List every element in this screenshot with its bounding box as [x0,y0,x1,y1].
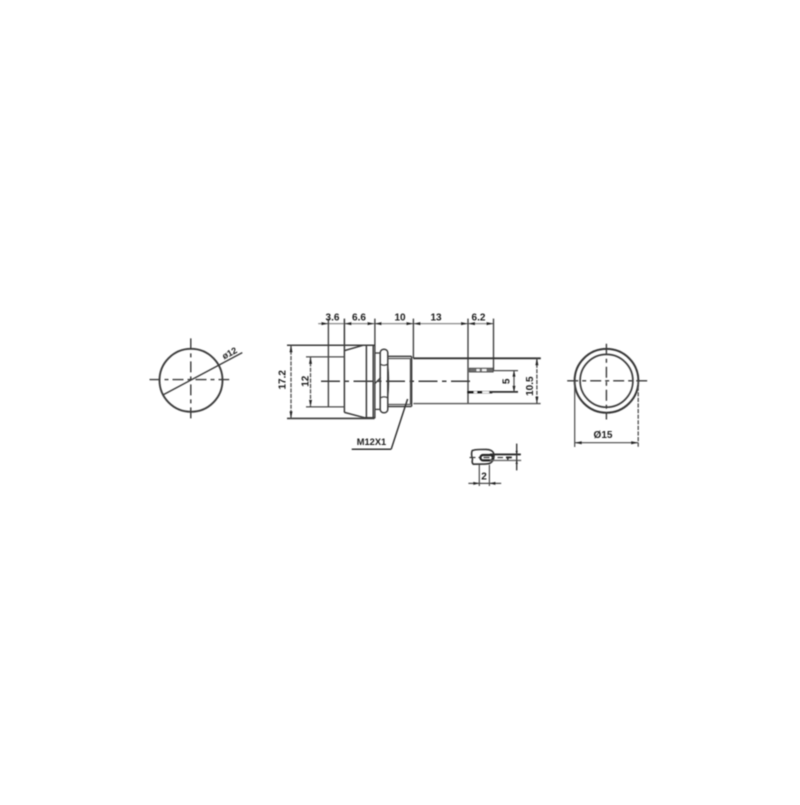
svg-text:3.6: 3.6 [326,313,340,324]
svg-text:13: 13 [430,313,442,324]
svg-text:12: 12 [300,375,311,387]
svg-text:M12X1: M12X1 [357,437,386,447]
svg-text:Ø15: Ø15 [594,430,613,441]
svg-text:5: 5 [502,378,513,384]
svg-text:6.6: 6.6 [352,313,366,324]
svg-text:6.2: 6.2 [472,313,486,324]
svg-text:17.2: 17.2 [277,370,288,390]
svg-text:10: 10 [394,313,406,324]
svg-text:10.5: 10.5 [525,376,536,396]
svg-text:2: 2 [481,472,487,483]
